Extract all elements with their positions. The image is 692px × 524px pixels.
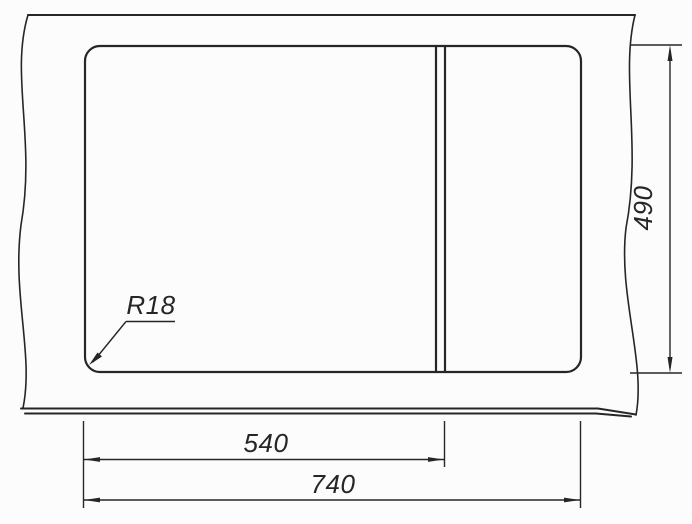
left-section-arrow-left xyxy=(84,457,100,462)
radius-dimension-label: R18 xyxy=(126,290,175,320)
depth-dimension: 490 xyxy=(628,45,682,373)
overall-width-arrow-left xyxy=(84,498,100,503)
overall-width-arrow-right xyxy=(564,498,580,503)
left-section-dimension-label: 540 xyxy=(244,428,289,458)
left-break-line xyxy=(19,15,28,408)
left-section-dimension: 540 xyxy=(84,428,444,462)
depth-arrow-down xyxy=(668,357,673,373)
depth-dimension-label: 490 xyxy=(628,186,658,231)
overall-width-dimension-label: 740 xyxy=(311,469,356,499)
overall-width-dimension: 740 xyxy=(84,469,580,502)
cutout-rounded-rectangle xyxy=(85,46,581,372)
radius-callout: R18 xyxy=(89,290,176,365)
technical-drawing: R18 490 540 740 xyxy=(0,0,692,524)
cutout-outline xyxy=(85,46,581,372)
counter-front-edge-lower-line xyxy=(25,414,631,417)
left-section-arrow-right xyxy=(428,457,444,462)
depth-arrow-up xyxy=(668,45,673,61)
countertop-section xyxy=(19,15,638,417)
drawing-canvas: R18 490 540 740 xyxy=(0,0,692,524)
